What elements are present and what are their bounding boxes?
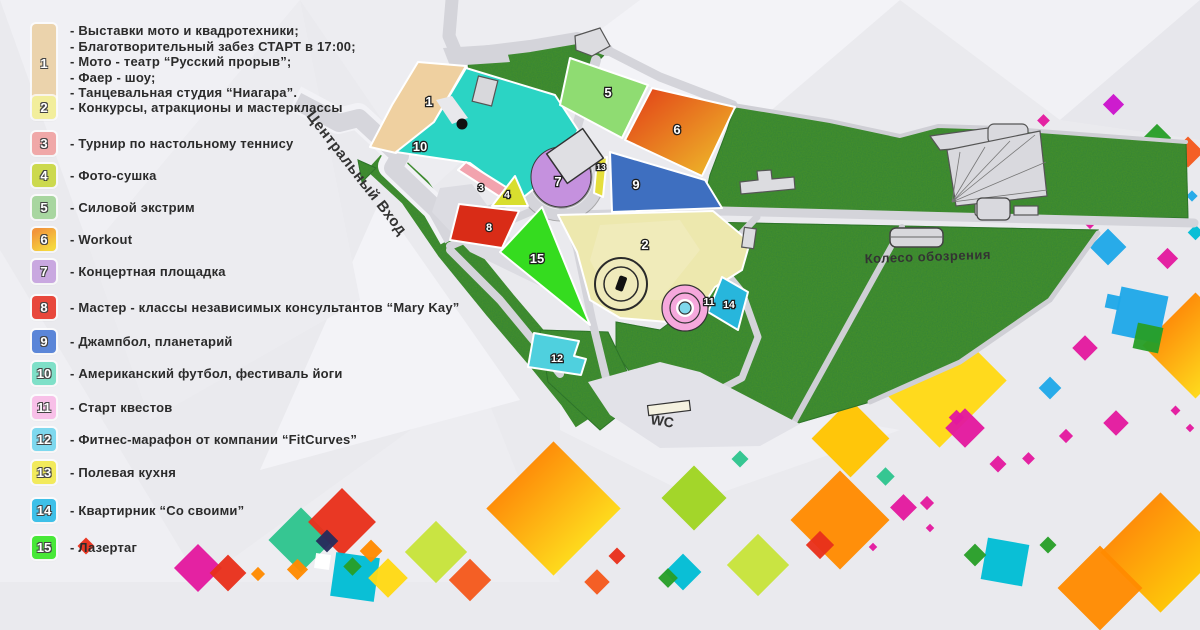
- legend-num-13: 13: [37, 465, 51, 480]
- legend-line: - Турнир по настольному теннису: [70, 132, 293, 155]
- legend-num-14: 14: [37, 503, 51, 518]
- legend-item-5: 5 - Силовой экстрим: [32, 196, 195, 219]
- fountain: [595, 258, 647, 310]
- zone-13-label: 13: [596, 162, 606, 172]
- legend-line: - Фитнес-марафон от компании “FitCurves”: [70, 428, 357, 451]
- zone-2-label: 2: [641, 237, 648, 252]
- legend-item-10: 10 - Американский футбол, фестиваль йоги: [32, 362, 343, 385]
- legend-line: - Фаер - шоу;: [70, 70, 356, 86]
- legend-swatch-6: 6: [32, 228, 56, 251]
- legend-num-4: 4: [40, 168, 47, 183]
- legend-line: - Концертная площадка: [70, 260, 226, 283]
- legend-line: - Лазертаг: [70, 536, 137, 559]
- legend-item-6: 6 - Workout: [32, 228, 132, 251]
- zone-14-label: 14: [723, 299, 735, 311]
- legend-line: - Американский футбол, фестиваль йоги: [70, 362, 343, 385]
- legend-swatch-9: 9: [32, 330, 56, 353]
- zone-15-label: 15: [530, 251, 544, 266]
- legend-num-8: 8: [40, 300, 47, 315]
- zone-11-label: 11: [703, 296, 714, 308]
- zone-8-label: 8: [486, 222, 492, 234]
- legend-item-8: 8 - Мастер - классы независимых консульт…: [32, 296, 460, 319]
- legend-line: - Workout: [70, 228, 132, 251]
- building-small-mid: [742, 227, 757, 248]
- legend-line: - Выставки мото и квадротехники;: [70, 23, 356, 39]
- legend-item-7: 7 - Концертная площадка: [32, 260, 226, 283]
- green-area-upper-right: [702, 106, 1188, 218]
- legend-swatch-13: 13: [32, 461, 56, 484]
- zone-6-label: 6: [673, 122, 680, 137]
- legend-swatch-10: 10: [32, 362, 56, 385]
- legend-num-12: 12: [37, 432, 51, 447]
- building-fan-base: [977, 198, 1010, 220]
- legend-line: - Полевая кухня: [70, 461, 176, 484]
- legend-num-3: 3: [40, 136, 47, 151]
- legend-swatch-15: 15: [32, 536, 56, 559]
- legend-swatch-14: 14: [32, 499, 56, 522]
- legend-line: - Старт квестов: [70, 396, 172, 419]
- legend-item-3: 3 - Турнир по настольному теннису: [32, 132, 293, 155]
- legend-swatch-4: 4: [32, 164, 56, 187]
- legend-swatch-11: 11: [32, 396, 56, 419]
- legend-line: - Квартирник “Со своими”: [70, 499, 244, 522]
- zone-7-label: 7: [554, 174, 561, 189]
- legend-swatch-7: 7: [32, 260, 56, 283]
- legend-num-11: 11: [37, 400, 51, 415]
- legend-swatch-12: 12: [32, 428, 56, 451]
- legend-line: - Мастер - классы независимых консультан…: [70, 296, 460, 319]
- legend-item-15: 15 - Лазертаг: [32, 536, 137, 559]
- legend-num-15: 15: [37, 540, 51, 555]
- legend-swatch-2: 2: [32, 96, 56, 119]
- legend-item-1: 1 - Выставки мото и квадротехники; - Бла…: [32, 24, 356, 102]
- legend-line: - Конкурсы, атракционы и мастерклассы: [70, 96, 343, 119]
- legend-num-1: 1: [40, 56, 47, 71]
- legend-swatch-1: 1: [32, 24, 56, 102]
- quest-start-rings: [662, 285, 708, 331]
- legend-item-11: 11 - Старт квестов: [32, 396, 172, 419]
- zone-9-label: 9: [632, 177, 639, 192]
- legend-item-12: 12 - Фитнес-марафон от компании “FitCurv…: [32, 428, 357, 451]
- legend-line: - Мото - театр “Русский прорыв”;: [70, 54, 356, 70]
- legend-item-2: 2 - Конкурсы, атракционы и мастерклассы: [32, 96, 343, 119]
- legend-num-10: 10: [37, 366, 51, 381]
- legend-item-9: 9 - Джампбол, планетарий: [32, 330, 233, 353]
- legend-line: - Джампбол, планетарий: [70, 330, 233, 353]
- legend-num-6: 6: [40, 232, 47, 247]
- building-strip-east-2: [1014, 206, 1038, 215]
- legend-line: - Фото-сушка: [70, 164, 157, 187]
- zone-12-label: 12: [551, 353, 563, 365]
- legend-swatch-3: 3: [32, 132, 56, 155]
- legend-panel: 1 - Выставки мото и квадротехники; - Бла…: [0, 0, 480, 582]
- legend-num-2: 2: [40, 100, 47, 115]
- zone-4-label: 4: [504, 189, 510, 201]
- legend-num-7: 7: [40, 264, 47, 279]
- legend-swatch-5: 5: [32, 196, 56, 219]
- legend-item-4: 4 - Фото-сушка: [32, 164, 157, 187]
- legend-num-5: 5: [40, 200, 47, 215]
- legend-item-14: 14 - Квартирник “Со своими”: [32, 499, 244, 522]
- legend-swatch-8: 8: [32, 296, 56, 319]
- legend-line: - Силовой экстрим: [70, 196, 195, 219]
- legend-num-9: 9: [40, 334, 47, 349]
- zone-5-label: 5: [604, 85, 611, 100]
- legend-line: - Благотворительный забез СТАРТ в 17:00;: [70, 39, 356, 55]
- legend-item-13: 13 - Полевая кухня: [32, 461, 176, 484]
